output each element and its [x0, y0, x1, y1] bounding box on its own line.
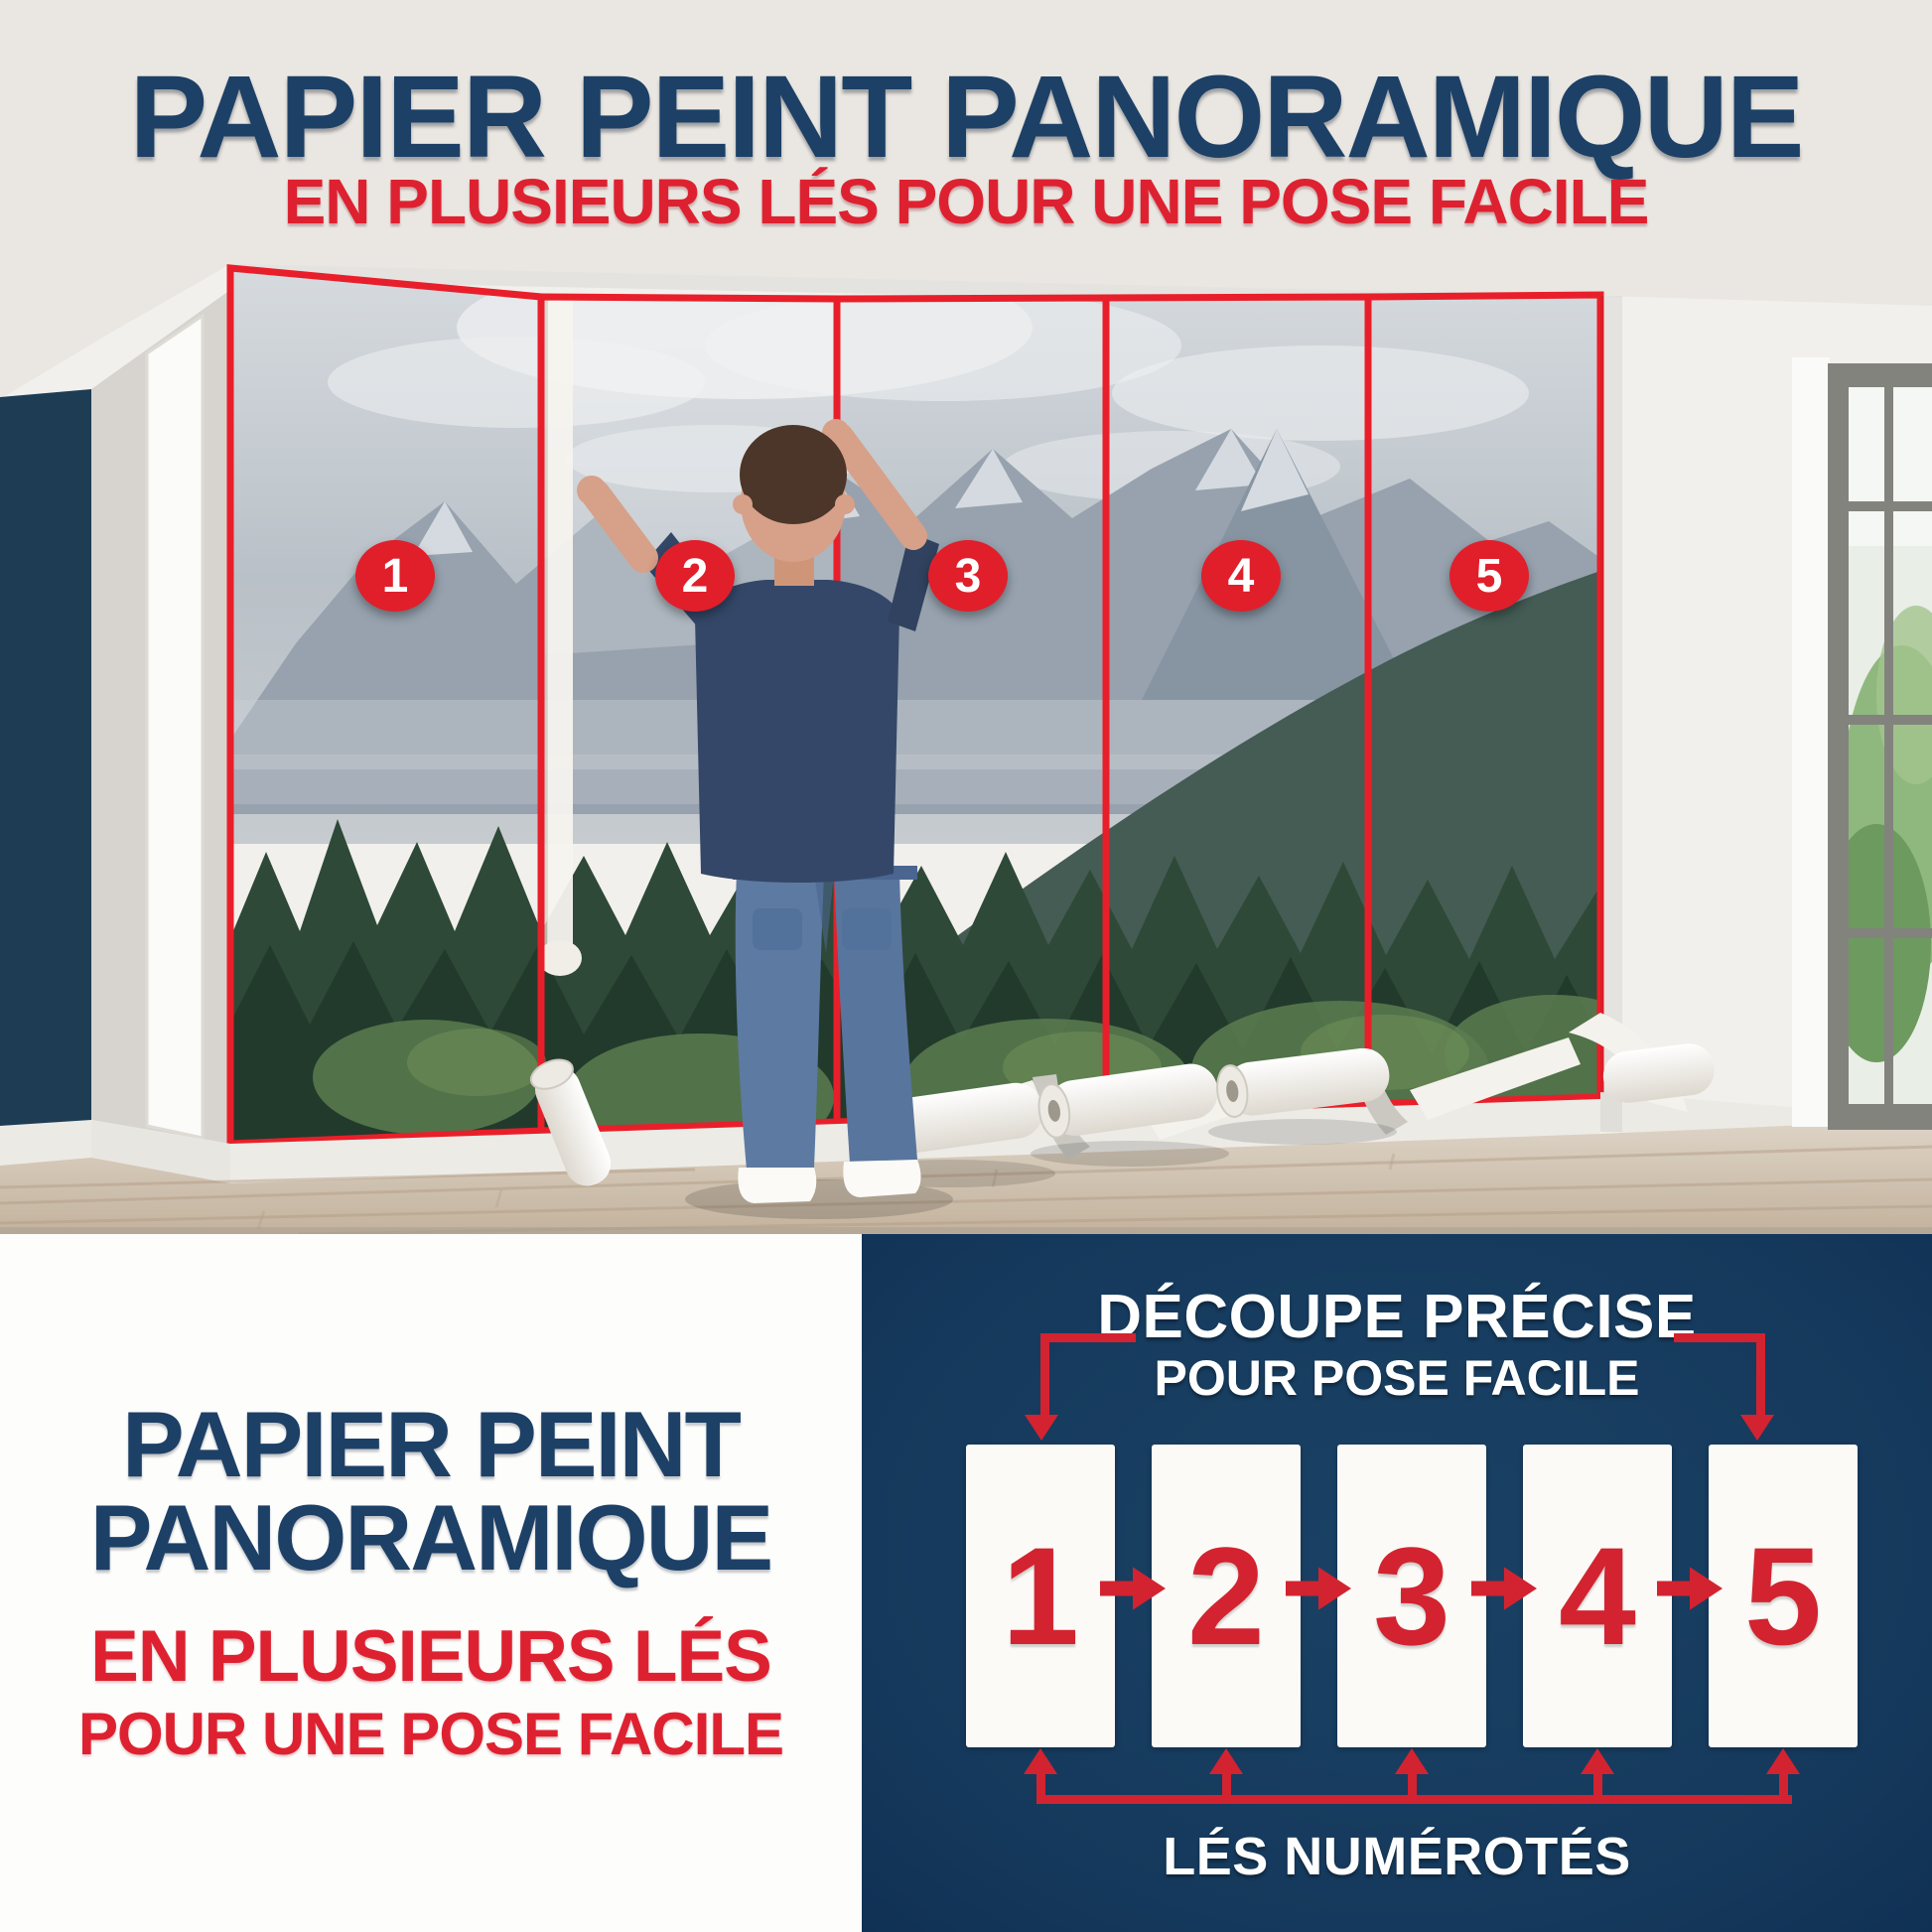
right-bracket-drop [1756, 1333, 1765, 1417]
strip-badge-1: 1 [355, 540, 435, 612]
diagram-strip-number: 4 [1559, 1516, 1636, 1677]
left-down-arrow-icon [1025, 1415, 1058, 1441]
strip-badge-4: 4 [1201, 540, 1281, 612]
connector-stub [1036, 1772, 1045, 1804]
strip-badge-2: 2 [655, 540, 735, 612]
right-down-arrow-icon [1740, 1415, 1774, 1441]
diagram-strip-1: 1 [966, 1445, 1115, 1747]
connector-stub [1779, 1772, 1788, 1804]
diagram-strip-number: 5 [1744, 1516, 1822, 1677]
up-arrow-icon [1395, 1748, 1429, 1774]
left-bracket-line [1040, 1333, 1136, 1342]
strip-badge-3: 3 [928, 540, 1008, 612]
left-bracket-drop [1040, 1333, 1049, 1417]
right-bracket-line [1674, 1333, 1765, 1342]
diagram-caption: LÉS NUMÉROTÉS [862, 1826, 1932, 1887]
diagram-strip-number: 3 [1373, 1516, 1450, 1677]
caption-subtitle-line1: EN PLUSIEURS LÉS [0, 1620, 862, 1693]
up-arrow-icon [1581, 1748, 1614, 1774]
diagram-strip-2: 2 [1152, 1445, 1301, 1747]
connector-stub [1408, 1772, 1417, 1804]
diagram-strip-number: 2 [1187, 1516, 1265, 1677]
strip-badge-5: 5 [1449, 540, 1529, 612]
diagram-strip-number: 1 [1002, 1516, 1079, 1677]
diagram-strip-5: 5 [1709, 1445, 1858, 1747]
photo-section: PAPIER PEINT PANORAMIQUE EN PLUSIEURS LÉ… [0, 0, 1932, 1234]
up-arrow-icon [1024, 1748, 1057, 1774]
poster: PAPIER PEINT PANORAMIQUE EN PLUSIEURS LÉ… [0, 0, 1932, 1932]
diagram-title-line1: DÉCOUPE PRÉCISE [862, 1282, 1932, 1352]
main-subtitle: EN PLUSIEURS LÉS POUR UNE POSE FACILE [0, 165, 1932, 238]
up-arrow-icon [1209, 1748, 1243, 1774]
diagram-strip-4: 4 [1523, 1445, 1672, 1747]
diagram-strip-3: 3 [1337, 1445, 1486, 1747]
connector-stub [1593, 1772, 1602, 1804]
diagram-section: DÉCOUPE PRÉCISE POUR POSE FACILE 1 2 3 4… [862, 1234, 1932, 1932]
up-arrow-icon [1766, 1748, 1800, 1774]
caption-subtitle-line2: POUR UNE POSE FACILE [0, 1705, 862, 1764]
diagram-title-line2: POUR POSE FACILE [862, 1349, 1932, 1407]
caption-section: PAPIER PEINT PANORAMIQUE EN PLUSIEURS LÉ… [0, 1234, 862, 1932]
connector-stub [1222, 1772, 1231, 1804]
caption-title-line1: PAPIER PEINT [0, 1398, 862, 1491]
caption-title-line2: PANORAMIQUE [0, 1491, 862, 1585]
